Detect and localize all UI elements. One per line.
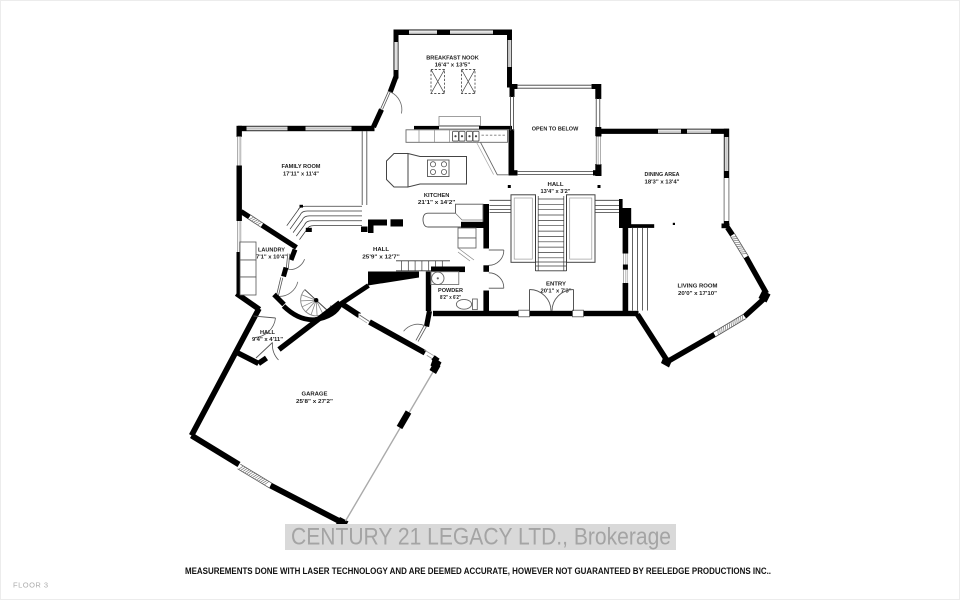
svg-text:POWDER: POWDER — [438, 288, 463, 294]
svg-text:9'4" x 4'11": 9'4" x 4'11" — [252, 337, 283, 343]
svg-text:8'2" x 6'2": 8'2" x 6'2" — [440, 295, 461, 301]
svg-text:20'0" x 17'10": 20'0" x 17'10" — [678, 291, 717, 297]
svg-text:MEASUREMENTS DONE WITH LASER T: MEASUREMENTS DONE WITH LASER TECHNOLOGY … — [185, 566, 771, 576]
svg-text:16'4" x 13'5": 16'4" x 13'5" — [435, 62, 471, 68]
svg-text:FAMILY ROOM: FAMILY ROOM — [282, 164, 322, 170]
svg-text:OPEN TO BELOW: OPEN TO BELOW — [532, 127, 579, 133]
svg-text:CENTURY 21 LEGACY LTD., Broker: CENTURY 21 LEGACY LTD., Brokerage — [291, 524, 671, 551]
svg-text:HALL: HALL — [373, 247, 390, 253]
svg-text:LAUNDRY: LAUNDRY — [258, 248, 285, 254]
svg-text:FLOOR 3: FLOOR 3 — [13, 581, 49, 590]
svg-text:7'1" x 10'4": 7'1" x 10'4" — [256, 255, 287, 261]
svg-text:HALL: HALL — [260, 330, 276, 336]
svg-text:LIVING ROOM: LIVING ROOM — [678, 284, 719, 290]
svg-text:GARAGE: GARAGE — [302, 392, 328, 398]
svg-text:KITCHEN: KITCHEN — [424, 193, 450, 199]
svg-text:13'4" x 3'2": 13'4" x 3'2" — [541, 189, 571, 195]
svg-text:ENTRY: ENTRY — [546, 282, 566, 288]
svg-text:20'1" x 7'3": 20'1" x 7'3" — [541, 289, 572, 295]
svg-text:21'1" x 14'2": 21'1" x 14'2" — [418, 200, 456, 206]
svg-text:25'8" x 27'2": 25'8" x 27'2" — [296, 399, 334, 405]
svg-text:BREAKFAST NOOK: BREAKFAST NOOK — [426, 56, 479, 62]
svg-text:17'11" x 11'4": 17'11" x 11'4" — [283, 172, 319, 178]
svg-text:DINING AREA: DINING AREA — [645, 172, 680, 178]
svg-text:25'9" x 12'7": 25'9" x 12'7" — [362, 255, 400, 261]
svg-text:HALL: HALL — [548, 182, 565, 188]
svg-text:18'3" x 13'4": 18'3" x 13'4" — [645, 179, 680, 185]
